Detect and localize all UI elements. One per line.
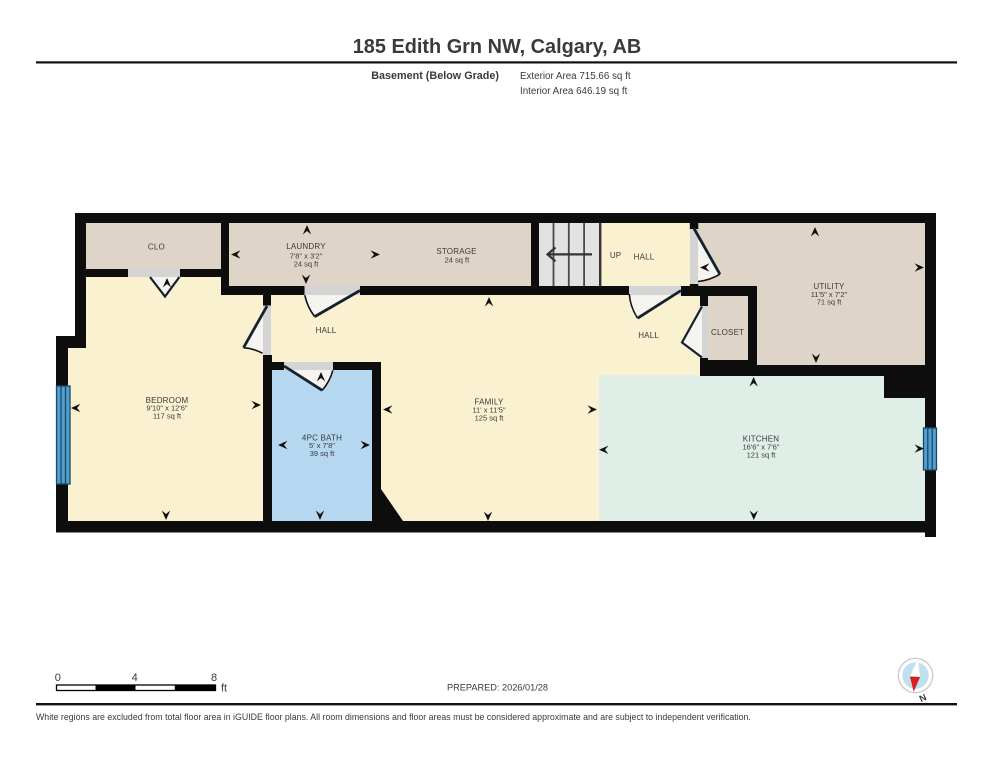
svg-text:PREPARED: 2026/01/28: PREPARED: 2026/01/28 xyxy=(447,683,548,693)
svg-text:8: 8 xyxy=(211,672,217,684)
svg-text:STORAGE: STORAGE xyxy=(436,247,476,256)
svg-text:Interior Area 646.19 sq ft: Interior Area 646.19 sq ft xyxy=(520,86,628,97)
svg-text:ft: ft xyxy=(221,683,227,695)
svg-text:HALL: HALL xyxy=(316,326,337,335)
svg-text:HALL: HALL xyxy=(638,331,659,340)
svg-text:121 sq ft: 121 sq ft xyxy=(747,450,777,459)
svg-text:185 Edith Grn NW, Calgary, AB: 185 Edith Grn NW, Calgary, AB xyxy=(353,36,641,58)
svg-text:0: 0 xyxy=(55,672,61,684)
svg-text:117 sq ft: 117 sq ft xyxy=(153,412,182,421)
svg-text:UP: UP xyxy=(610,251,622,260)
svg-text:HALL: HALL xyxy=(634,253,655,262)
svg-text:CLO: CLO xyxy=(148,243,165,252)
svg-text:24 sq ft: 24 sq ft xyxy=(294,260,320,269)
svg-text:Exterior Area 715.66 sq ft: Exterior Area 715.66 sq ft xyxy=(520,71,631,82)
svg-text:71 sq ft: 71 sq ft xyxy=(817,298,843,307)
svg-text:LAUNDRY: LAUNDRY xyxy=(286,242,326,251)
svg-text:39 sq ft: 39 sq ft xyxy=(310,449,336,458)
svg-text:24 sq ft: 24 sq ft xyxy=(445,256,471,265)
svg-text:Basement (Below Grade): Basement (Below Grade) xyxy=(371,70,499,82)
svg-text:4: 4 xyxy=(132,672,138,684)
svg-text:CLOSET: CLOSET xyxy=(711,328,744,337)
svg-text:125 sq ft: 125 sq ft xyxy=(475,414,505,423)
svg-text:White regions are excluded fro: White regions are excluded from total fl… xyxy=(36,712,751,722)
